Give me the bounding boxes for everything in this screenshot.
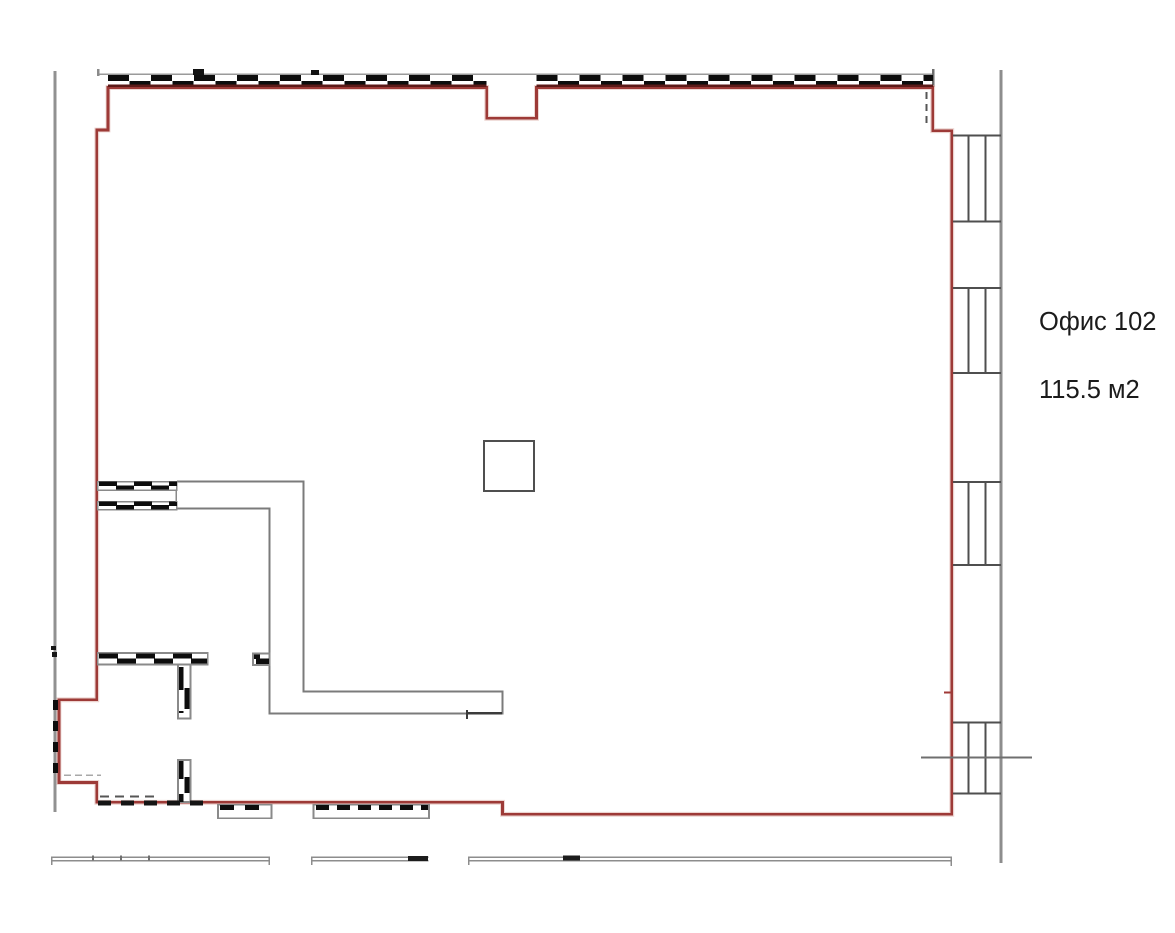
svg-text:115.5 м2: 115.5 м2 [1039, 376, 1140, 404]
svg-text:Офис 102: Офис 102 [1039, 308, 1156, 336]
